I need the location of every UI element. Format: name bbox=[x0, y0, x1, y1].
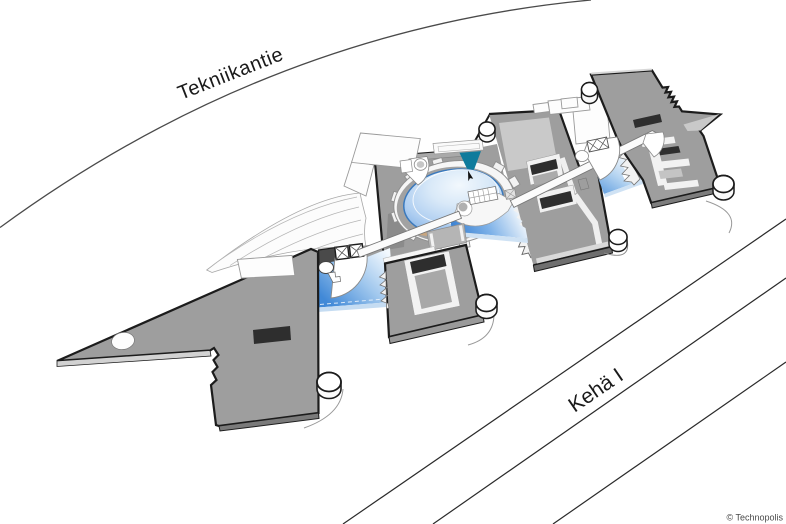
svg-text:© Technopolis: © Technopolis bbox=[726, 513, 783, 523]
